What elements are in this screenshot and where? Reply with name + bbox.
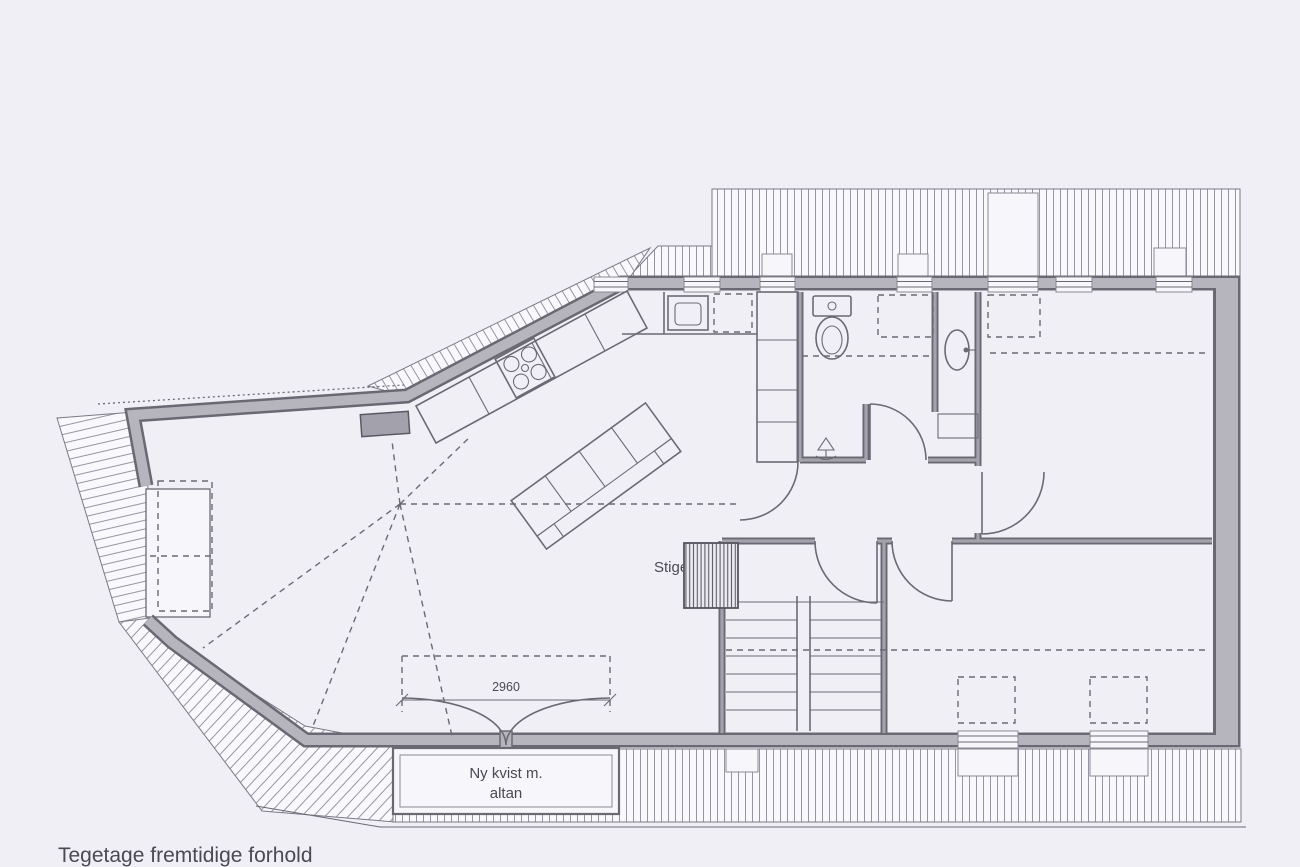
niche-outline [146,489,210,617]
drawing-title: Tegetage fremtidige forhold [58,844,313,867]
chimney-icon [360,411,409,436]
roof-window-slot [726,749,758,772]
new-dormer: Ny kvist m. altan [393,748,619,814]
left-niche [146,489,210,617]
roof-window-slot [958,749,1018,776]
roof-dormer-slot [988,193,1038,285]
loft-ladder-hatch-icon [684,543,738,608]
ladder-label: Stige [654,559,688,576]
dormer-label-line1: Ny kvist m. [469,765,542,782]
floor-plan-page: Stige 2960 Ny kvist m. altan Tegetage fr… [0,0,1300,867]
roof-window-slot [1090,749,1148,776]
dimension-value: 2960 [492,680,520,694]
dormer-label-line2: altan [490,785,523,802]
floor-plan-drawing: Stige 2960 Ny kvist m. altan Tegetage fr… [0,0,1300,867]
